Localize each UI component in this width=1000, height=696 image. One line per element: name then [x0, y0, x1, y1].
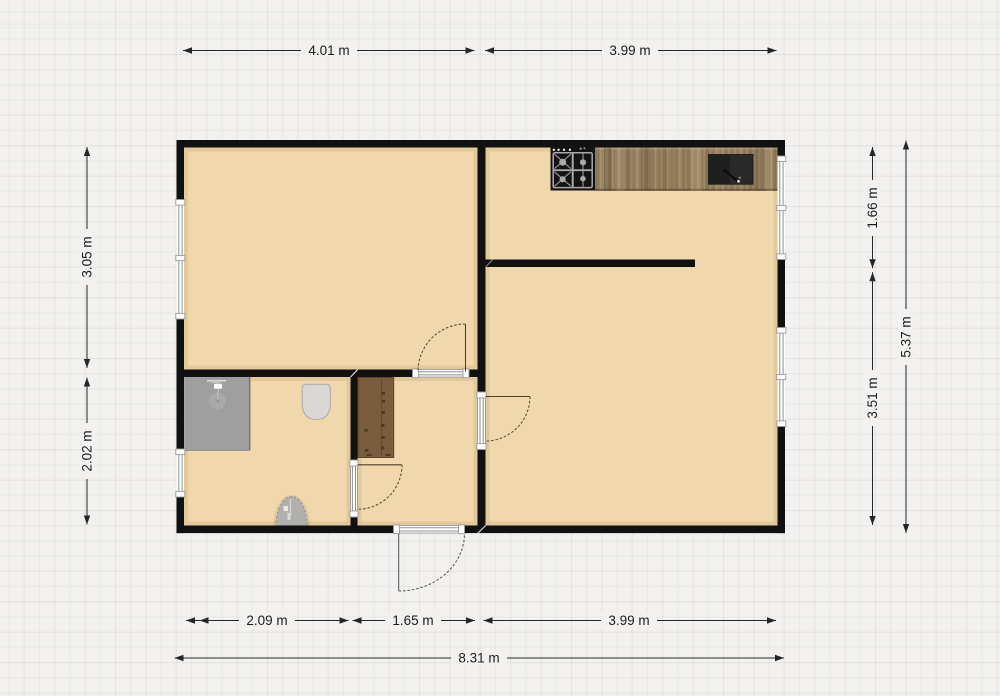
svg-text:1.65 m: 1.65 m — [392, 613, 433, 628]
svg-text:8.31 m: 8.31 m — [458, 651, 499, 666]
svg-text:3.51 m: 3.51 m — [865, 377, 880, 418]
svg-text:1.66 m: 1.66 m — [865, 187, 880, 228]
svg-text:4.01 m: 4.01 m — [308, 43, 349, 58]
svg-text:5.37 m: 5.37 m — [899, 316, 914, 357]
svg-text:3.99 m: 3.99 m — [609, 43, 650, 58]
svg-text:3.99 m: 3.99 m — [608, 613, 649, 628]
svg-text:2.09 m: 2.09 m — [246, 613, 287, 628]
svg-text:3.05 m: 3.05 m — [80, 236, 95, 277]
svg-text:2.02 m: 2.02 m — [80, 430, 95, 471]
